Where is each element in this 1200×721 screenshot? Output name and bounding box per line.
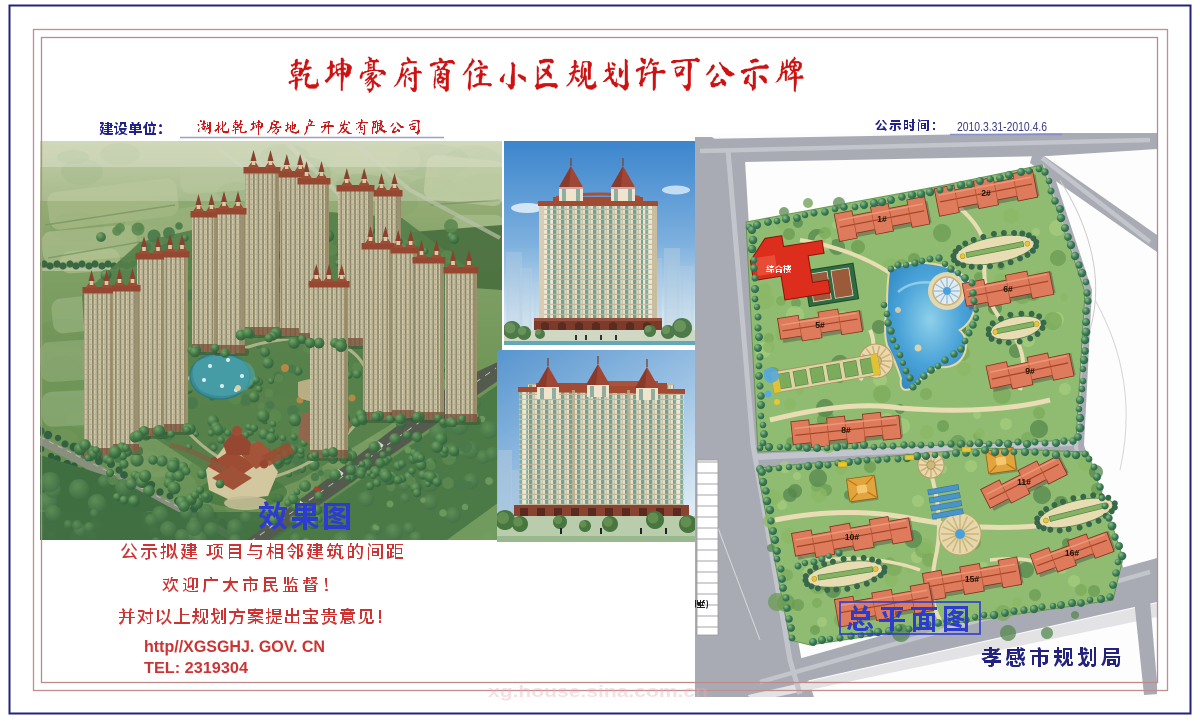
svg-text:2#: 2#	[981, 188, 991, 198]
svg-text:9#: 9#	[1025, 366, 1035, 376]
svg-text:15#: 15#	[965, 574, 979, 584]
svg-text:http//XGSGHJ. GOV. CN: http//XGSGHJ. GOV. CN	[144, 638, 325, 656]
svg-text:2010.3.31-2010.4.6: 2010.3.31-2010.4.6	[957, 119, 1047, 134]
svg-text:10#: 10#	[845, 532, 859, 542]
svg-text:16#: 16#	[1065, 548, 1079, 558]
svg-text:5#: 5#	[815, 320, 825, 330]
svg-text:6#: 6#	[1003, 284, 1013, 294]
svg-text:11#: 11#	[1017, 477, 1031, 487]
svg-text:1#: 1#	[877, 214, 887, 224]
svg-text:8#: 8#	[841, 425, 851, 435]
svg-text:xg.house.sina.com.cn: xg.house.sina.com.cn	[488, 682, 708, 701]
svg-text:TEL: 2319304: TEL: 2319304	[144, 660, 248, 677]
